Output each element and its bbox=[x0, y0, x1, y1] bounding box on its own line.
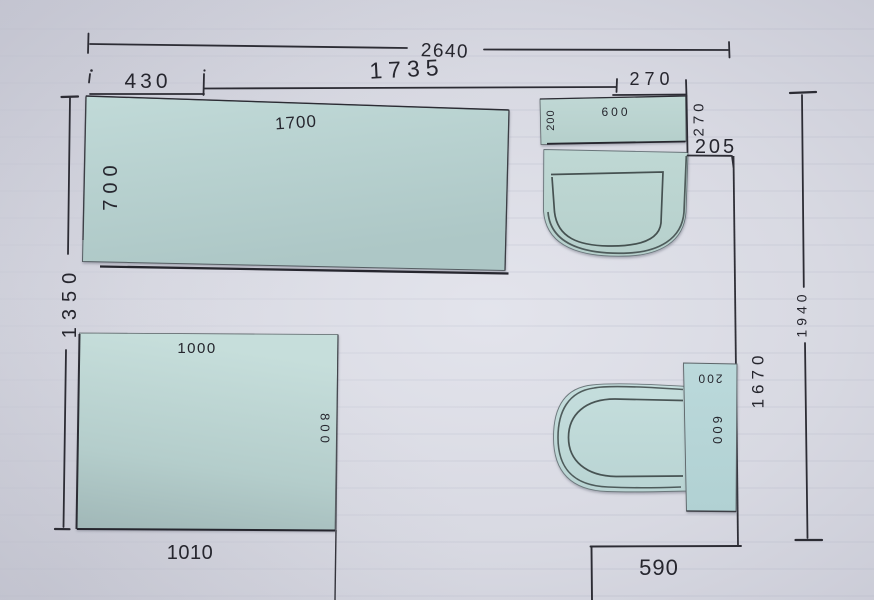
svg-text:200: 200 bbox=[545, 109, 557, 130]
svg-text:430: 430 bbox=[124, 70, 171, 93]
svg-text:1700: 1700 bbox=[275, 112, 318, 134]
svg-text:600: 600 bbox=[710, 416, 725, 447]
svg-text:270: 270 bbox=[629, 69, 674, 89]
svg-text:205: 205 bbox=[695, 136, 737, 158]
svg-text:200: 200 bbox=[696, 372, 722, 386]
svg-text:1735: 1735 bbox=[369, 54, 445, 84]
svg-text:600: 600 bbox=[601, 105, 630, 119]
svg-text:800: 800 bbox=[318, 413, 333, 447]
svg-text:1000: 1000 bbox=[177, 340, 216, 357]
svg-text:1010: 1010 bbox=[167, 542, 214, 564]
svg-text:1670: 1670 bbox=[749, 351, 768, 409]
svg-text:1350: 1350 bbox=[59, 266, 81, 339]
svg-text:700: 700 bbox=[100, 159, 122, 210]
svg-text:1940: 1940 bbox=[794, 290, 810, 337]
svg-text:590: 590 bbox=[639, 555, 679, 580]
svg-text:270: 270 bbox=[691, 99, 708, 136]
